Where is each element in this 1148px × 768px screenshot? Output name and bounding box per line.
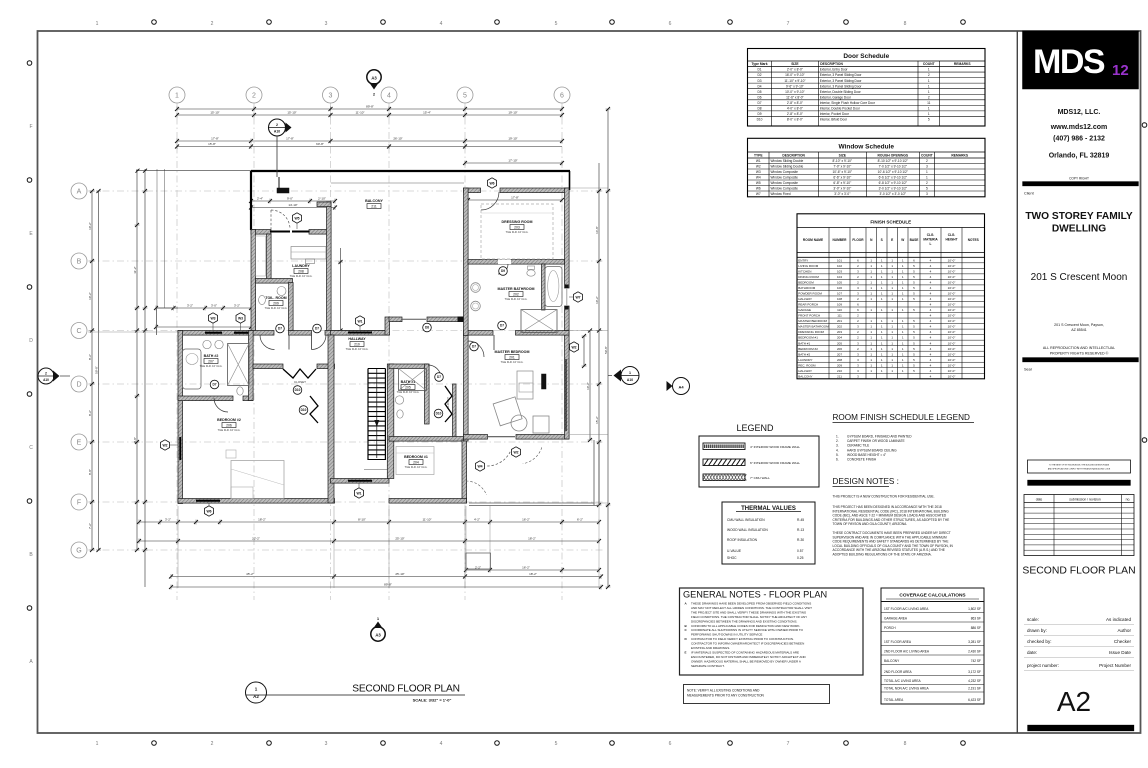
svg-text:LAUNDRY: LAUNDRY — [292, 264, 310, 268]
svg-text:2'-8" x 8'-0": 2'-8" x 8'-0" — [787, 101, 803, 105]
svg-text:10'-0": 10'-0" — [948, 341, 956, 345]
svg-text:Issue Date: Issue Date — [1109, 650, 1131, 655]
svg-text:D9: D9 — [501, 269, 505, 273]
svg-text:W2: W2 — [571, 345, 576, 349]
svg-text:WOOD BASE HEIGHT = 4": WOOD BASE HEIGHT = 4" — [847, 453, 886, 457]
svg-text:102: 102 — [837, 264, 842, 268]
svg-text:BATH #2: BATH #2 — [204, 354, 219, 358]
svg-text:8'-2": 8'-2" — [88, 410, 92, 416]
svg-text:GARAGE: GARAGE — [798, 308, 811, 312]
svg-text:TILE FLR. 10' CLG.: TILE FLR. 10' CLG. — [200, 364, 223, 368]
svg-text:MASTER BATHROOM: MASTER BATHROOM — [798, 325, 829, 329]
svg-text:2,191 SF: 2,191 SF — [968, 687, 981, 691]
svg-text:R-45: R-45 — [797, 518, 804, 522]
svg-text:6'-8 1/2" x 9'-10 1/2": 6'-8 1/2" x 9'-10 1/2" — [879, 181, 907, 185]
svg-text:W6: W6 — [489, 181, 494, 185]
svg-text:TOTAL A/C LIVING AREA: TOTAL A/C LIVING AREA — [884, 679, 921, 683]
svg-text:201 S Crescent Moon, Payson,: 201 S Crescent Moon, Payson, — [1054, 323, 1104, 327]
svg-text:3'-0 1/2" x 9'-10 1/2": 3'-0 1/2" x 9'-10 1/2" — [879, 187, 907, 191]
svg-text:11'-10" x 9'-10": 11'-10" x 9'-10" — [784, 79, 805, 83]
svg-text:10'-0" x 9'-10": 10'-0" x 9'-10" — [785, 90, 805, 94]
svg-text:W6: W6 — [756, 187, 761, 191]
svg-text:10'-6 1/2" x 9'-10 1/2": 10'-6 1/2" x 9'-10 1/2" — [878, 170, 908, 174]
svg-text:5: 5 — [555, 21, 558, 27]
svg-text:TO THE BEST OF MY KNOWLEDGE, T: TO THE BEST OF MY KNOWLEDGE, THE BUILDIN… — [1049, 464, 1110, 467]
svg-text:G: G — [76, 548, 81, 555]
svg-text:1: 1 — [928, 90, 930, 94]
svg-text:3'-0": 3'-0" — [211, 304, 217, 308]
svg-text:COVERAGE CALCULATIONS: COVERAGE CALCULATIONS — [899, 593, 966, 599]
svg-text:8: 8 — [904, 741, 907, 747]
svg-text:3: 3 — [325, 741, 328, 747]
svg-text:2ND FLOOR A/C LIVING AREA: 2ND FLOOR A/C LIVING AREA — [884, 650, 930, 654]
svg-text:108: 108 — [837, 297, 842, 301]
svg-text:Interior, Bifold Door: Interior, Bifold Door — [820, 118, 848, 122]
svg-text:BALCONY: BALCONY — [365, 199, 383, 203]
svg-text:10'-0": 10'-0" — [948, 369, 956, 373]
svg-text:7'-2": 7'-2" — [88, 523, 92, 529]
svg-text:26'-10": 26'-10" — [393, 137, 402, 141]
svg-text:208: 208 — [298, 270, 304, 274]
svg-text:SECOND FLOOR PLAN: SECOND FLOOR PLAN — [352, 684, 460, 695]
svg-text:Type Mark: Type Mark — [751, 62, 767, 66]
svg-text:1ST FLOOR AREA: 1ST FLOOR AREA — [884, 640, 912, 644]
svg-text:18'-2": 18'-2" — [528, 537, 536, 541]
svg-text:COUNT: COUNT — [923, 62, 935, 66]
svg-text:A4: A4 — [678, 385, 684, 390]
svg-text:Window Fixed: Window Fixed — [771, 192, 791, 196]
svg-text:104: 104 — [837, 275, 842, 279]
svg-text:BEDROOM #1: BEDROOM #1 — [798, 336, 818, 340]
svg-text:TOWN OF PAYSON AND GILA COUNTY: TOWN OF PAYSON AND GILA COUNTY, ARIZONA. — [833, 522, 908, 526]
svg-text:8'-0" x 8'-0": 8'-0" x 8'-0" — [787, 118, 803, 122]
svg-text:D7: D7 — [500, 324, 504, 328]
svg-text:REMARKS: REMARKS — [951, 154, 968, 158]
svg-text:W: W — [901, 238, 904, 242]
svg-text:103: 103 — [837, 269, 842, 273]
svg-text:10'-0": 10'-0" — [948, 325, 956, 329]
svg-text:9'-8": 9'-8" — [133, 437, 137, 443]
svg-text:10'-2": 10'-2" — [595, 296, 599, 304]
svg-text:BEDROOM #1: BEDROOM #1 — [404, 455, 428, 459]
svg-text:HALLWAY: HALLWAY — [798, 297, 812, 301]
svg-text:Exterior, Double Sliding Door: Exterior, Double Sliding Door — [820, 90, 862, 94]
svg-text:date: date — [1036, 498, 1043, 502]
svg-text:3'-2": 3'-2" — [165, 518, 171, 522]
svg-text:CONCRETE FINISH: CONCRETE FINISH — [847, 458, 877, 462]
svg-text:14'-8": 14'-8" — [595, 226, 599, 234]
svg-text:GENERAL NOTES - FLOOR PLAN: GENERAL NOTES - FLOOR PLAN — [683, 590, 827, 600]
svg-text:TILE FLR. 10' CLG.: TILE FLR. 10' CLG. — [501, 360, 524, 364]
svg-text:1: 1 — [629, 371, 631, 375]
svg-text:BALCONY: BALCONY — [798, 374, 812, 378]
svg-text:7" CMU WALL: 7" CMU WALL — [750, 476, 770, 480]
svg-text:no.: no. — [1126, 498, 1131, 502]
svg-text:THIS PROJECT IS A NEW CONSTRUC: THIS PROJECT IS A NEW CONSTRUCTION FOR R… — [833, 495, 935, 499]
svg-text:NOTES: NOTES — [968, 238, 979, 242]
svg-text:6: 6 — [669, 741, 672, 747]
svg-text:60'-8": 60'-8" — [316, 142, 324, 146]
svg-text:10'-6" x 9'-10": 10'-6" x 9'-10" — [832, 170, 852, 174]
svg-text:2,430 SF: 2,430 SF — [968, 650, 981, 654]
svg-text:208: 208 — [837, 358, 842, 362]
svg-text:D2: D2 — [757, 73, 761, 77]
svg-text:2: 2 — [252, 93, 256, 100]
svg-text:17'-8": 17'-8" — [511, 196, 519, 200]
svg-text:17'-10": 17'-10" — [508, 159, 517, 163]
svg-text:Window Sliding Double: Window Sliding Double — [771, 165, 804, 169]
svg-text:10'-0": 10'-0" — [948, 314, 956, 318]
svg-text:210: 210 — [354, 343, 360, 347]
svg-text:10'-0": 10'-0" — [948, 292, 956, 296]
svg-text:HALLWAY: HALLWAY — [348, 337, 366, 341]
svg-text:1: 1 — [928, 79, 930, 83]
svg-text:FLOOR: FLOOR — [852, 238, 864, 242]
svg-text:NUMBER: NUMBER — [833, 238, 848, 242]
svg-text:8'-2": 8'-2" — [88, 354, 92, 360]
svg-text:MASTER BEDROOM: MASTER BEDROOM — [495, 350, 530, 354]
svg-text:D10: D10 — [295, 388, 301, 392]
svg-text:W5: W5 — [294, 216, 299, 220]
svg-text:6.: 6. — [836, 458, 839, 462]
svg-text:8'-10": 8'-10" — [358, 518, 366, 522]
svg-text:OWNER. HAZARDOUS MATERIAL SHA: OWNER. HAZARDOUS MATERIAL SHALL BE REMOV… — [691, 659, 801, 663]
svg-text:3: 3 — [926, 192, 928, 196]
svg-text:MATERIA: MATERIA — [923, 238, 938, 242]
svg-text:D9: D9 — [757, 112, 761, 116]
svg-text:CMU WALL INSULATION: CMU WALL INSULATION — [727, 518, 765, 522]
svg-text:3'-2": 3'-2" — [187, 304, 193, 308]
svg-text:Seal: Seal — [1024, 368, 1032, 372]
svg-text:6: 6 — [560, 93, 564, 100]
svg-text:15'-2": 15'-2" — [595, 416, 599, 424]
svg-text:THERMAL VALUES: THERMAL VALUES — [741, 506, 796, 512]
svg-text:REAR PORCH: REAR PORCH — [798, 303, 818, 307]
svg-text:6,423 SF: 6,423 SF — [968, 698, 981, 702]
svg-text:10'-0": 10'-0" — [948, 374, 956, 378]
svg-text:59'-8": 59'-8" — [604, 346, 608, 354]
svg-text:LIVING ROOM: LIVING ROOM — [798, 264, 819, 268]
svg-text:TOIL. ROOM: TOIL. ROOM — [265, 296, 286, 300]
svg-text:R-30: R-30 — [797, 538, 804, 542]
svg-text:W2: W2 — [756, 165, 761, 169]
svg-text:2: 2 — [45, 372, 47, 376]
svg-text:25'-10": 25'-10" — [395, 537, 404, 541]
svg-text:A10: A10 — [274, 130, 280, 134]
svg-text:W3: W3 — [238, 316, 243, 320]
svg-text:TILE FLR. 10' CLG.: TILE FLR. 10' CLG. — [505, 297, 528, 301]
svg-text:DINING ROOM: DINING ROOM — [798, 275, 819, 279]
svg-text:11: 11 — [927, 101, 931, 105]
svg-text:SIZE: SIZE — [839, 154, 847, 158]
svg-text:project number:: project number: — [1027, 663, 1059, 668]
svg-text:1: 1 — [175, 93, 179, 100]
svg-text:D4: D4 — [757, 84, 761, 88]
svg-text:101: 101 — [837, 258, 842, 262]
svg-text:3'-2": 3'-2" — [234, 304, 240, 308]
svg-text:10'-0": 10'-0" — [948, 286, 956, 290]
svg-text:BEDROOM #2: BEDROOM #2 — [217, 418, 241, 422]
svg-text:2ND FLOOR AREA: 2ND FLOOR AREA — [884, 670, 913, 674]
svg-text:7'-0 1/2" x 9'-10 1/2": 7'-0 1/2" x 9'-10 1/2" — [879, 165, 907, 169]
svg-text:TOTAL AREA: TOTAL AREA — [884, 698, 904, 702]
svg-text:203: 203 — [837, 330, 842, 334]
svg-text:(407) 986 - 2132: (407) 986 - 2132 — [1053, 136, 1105, 143]
svg-text:8: 8 — [904, 21, 907, 27]
svg-text:D8: D8 — [425, 326, 429, 330]
svg-text:202: 202 — [513, 293, 519, 297]
svg-text:3'-0" x 9'-10": 3'-0" x 9'-10" — [833, 187, 851, 191]
svg-text:GARAGE AREA: GARAGE AREA — [884, 617, 908, 621]
svg-text:ALL REPRODUCTION AND INTELLECT: ALL REPRODUCTION AND INTELLECTUAL — [1043, 346, 1115, 350]
svg-text:HEIGHT: HEIGHT — [945, 238, 957, 242]
svg-text:BATH #1: BATH #1 — [401, 380, 416, 384]
svg-text:W1: W1 — [356, 491, 361, 495]
svg-text:COPY RIGHT: COPY RIGHT — [1069, 177, 1089, 181]
svg-text:Exterior, Garage Door: Exterior, Garage Door — [820, 95, 852, 99]
svg-text:HARD GYPSUM BOARD CEILING: HARD GYPSUM BOARD CEILING — [847, 448, 897, 452]
svg-text:17'-8": 17'-8" — [286, 137, 294, 141]
svg-text:203: 203 — [514, 226, 520, 230]
svg-text:ADOPTED BUILDING REGULATIONS O: ADOPTED BUILDING REGULATIONS OF THE STAT… — [833, 553, 932, 557]
svg-text:3: 3 — [325, 21, 328, 27]
svg-text:DRESSING ROOM: DRESSING ROOM — [502, 220, 533, 224]
svg-text:As indicated: As indicated — [1106, 617, 1131, 622]
svg-text:A: A — [77, 189, 82, 196]
svg-text:Interior, Double Pocket Door: Interior, Double Pocket Door — [820, 107, 861, 111]
svg-text:BEDROOM #2: BEDROOM #2 — [798, 347, 818, 351]
svg-text:D: D — [29, 338, 33, 344]
svg-text:Client: Client — [1024, 192, 1035, 196]
svg-text:206: 206 — [226, 424, 232, 428]
svg-text:10'-0": 10'-0" — [948, 303, 956, 307]
svg-text:GYPSUM BOARD, FINISHED AND PAI: GYPSUM BOARD, FINISHED AND PAINTED — [847, 435, 912, 439]
svg-text:16'-2": 16'-2" — [522, 566, 530, 570]
svg-text:DESCRIPTION: DESCRIPTION — [820, 62, 843, 66]
svg-text:17'-8": 17'-8" — [211, 137, 219, 141]
svg-text:1,802 SF: 1,802 SF — [968, 607, 981, 611]
svg-text:drawn by:: drawn by: — [1027, 628, 1047, 633]
svg-text:Window Composite: Window Composite — [771, 176, 799, 180]
svg-text:25'-10": 25'-10" — [395, 572, 404, 576]
svg-text:MASTER BEDROOM: MASTER BEDROOM — [798, 319, 827, 323]
svg-text:211: 211 — [371, 205, 377, 209]
svg-text:9'-0": 9'-0" — [287, 197, 293, 201]
svg-text:E: E — [685, 650, 687, 654]
svg-text:6" INTERIOR WOOD FRAME WALL: 6" INTERIOR WOOD FRAME WALL — [750, 461, 800, 465]
svg-text:CLG.: CLG. — [927, 233, 935, 237]
svg-text:110: 110 — [837, 308, 842, 312]
svg-text:SHGC: SHGC — [727, 556, 737, 560]
svg-text:1: 1 — [928, 112, 930, 116]
svg-text:F: F — [77, 500, 81, 507]
svg-text:45'-2": 45'-2" — [246, 572, 254, 576]
svg-text:A10: A10 — [627, 378, 633, 382]
svg-text:4'-2": 4'-2" — [474, 518, 480, 522]
svg-text:MASTER BATHROOM: MASTER BATHROOM — [497, 287, 534, 291]
svg-text:4: 4 — [440, 741, 443, 747]
svg-text:ROOM NAME: ROOM NAME — [803, 238, 823, 242]
svg-text:CLOSET: CLOSET — [446, 397, 450, 409]
svg-text:209: 209 — [273, 302, 279, 306]
svg-text:209: 209 — [837, 363, 842, 367]
svg-text:THE PROJECT SITE AND SHALL VER: THE PROJECT SITE AND SHALL VERIFY THESE … — [691, 610, 807, 614]
svg-text:AZ 85541: AZ 85541 — [1071, 328, 1087, 332]
svg-text:207: 207 — [837, 352, 842, 356]
svg-text:10'-0": 10'-0" — [948, 352, 956, 356]
svg-text:TILE FLR. 10' CLG.: TILE FLR. 10' CLG. — [346, 347, 369, 351]
svg-text:2'-4": 2'-4" — [257, 197, 263, 201]
svg-text:BASE: BASE — [910, 238, 919, 242]
svg-text:COORDINATE ALL SHUTDOWNS IN UT: COORDINATE ALL SHUTDOWNS IN UTILITY SERV… — [691, 628, 804, 632]
svg-text:CLOSET: CLOSET — [294, 380, 306, 384]
svg-text:3'-0" x 3'-0": 3'-0" x 3'-0" — [834, 192, 850, 196]
svg-text:A10: A10 — [43, 378, 49, 382]
svg-text:2: 2 — [211, 741, 214, 747]
svg-text:Orlando, FL 32819: Orlando, FL 32819 — [1049, 153, 1110, 160]
svg-text:0.57: 0.57 — [797, 549, 804, 553]
svg-text:Door Schedule: Door Schedule — [843, 53, 889, 60]
svg-text:D7: D7 — [315, 327, 319, 331]
svg-text:202: 202 — [837, 325, 842, 329]
svg-text:W2: W2 — [513, 450, 518, 454]
svg-text:10'-0": 10'-0" — [948, 319, 956, 323]
svg-text:SIZE: SIZE — [791, 62, 799, 66]
svg-text:TILE FLR. 10' CLG.: TILE FLR. 10' CLG. — [506, 230, 529, 234]
svg-text:4: 4 — [387, 93, 391, 100]
svg-text:C: C — [29, 445, 33, 451]
svg-text:10'-0": 10'-0" — [948, 363, 956, 367]
svg-text:4,232 SF: 4,232 SF — [968, 679, 981, 683]
svg-text:EXISTING AND DRAWINGS.: EXISTING AND DRAWINGS. — [691, 646, 730, 650]
svg-text:1: 1 — [96, 21, 99, 27]
svg-text:D7: D7 — [437, 375, 441, 379]
svg-text:BEDROOM: BEDROOM — [798, 281, 814, 285]
svg-text:U-VALUE: U-VALUE — [727, 549, 742, 553]
svg-text:16'-2": 16'-2" — [522, 518, 530, 522]
svg-text:201: 201 — [837, 319, 842, 323]
svg-text:Exterior, 3 Panel Sliding Door: Exterior, 3 Panel Sliding Door — [820, 73, 863, 77]
svg-text:DWELLING: DWELLING — [1052, 224, 1106, 235]
svg-text:C: C — [76, 328, 81, 335]
svg-text:1: 1 — [96, 741, 99, 747]
svg-text:IF MATERIALS SUSPECTED OF CONT: IF MATERIALS SUSPECTED OF CONTAINING HAZ… — [691, 650, 799, 654]
svg-text:www.mds12.com: www.mds12.com — [1050, 124, 1108, 131]
svg-text:5: 5 — [928, 118, 930, 122]
svg-text:205: 205 — [405, 386, 411, 390]
svg-text:4'-0" x 8'-0": 4'-0" x 8'-0" — [787, 107, 803, 111]
svg-text:E: E — [77, 440, 82, 447]
svg-text:106: 106 — [837, 286, 842, 290]
svg-text:11'-10": 11'-10" — [355, 111, 364, 115]
svg-text:D8: D8 — [757, 107, 761, 111]
svg-text:CONTRACTOR TO FIELD VERIFY EXI: CONTRACTOR TO FIELD VERIFY EXISTING PRIO… — [691, 637, 794, 641]
svg-text:10'-0": 10'-0" — [948, 297, 956, 301]
svg-text:22'-2": 22'-2" — [252, 537, 260, 541]
svg-text:886 SF: 886 SF — [971, 626, 981, 630]
svg-text:AND MAY NOT REFLECT ALL HIDDEN: AND MAY NOT REFLECT ALL HIDDEN CONDITION… — [691, 606, 812, 610]
svg-text:1: 1 — [928, 84, 930, 88]
svg-text:B: B — [77, 259, 82, 266]
svg-text:W5: W5 — [756, 181, 761, 185]
svg-text:D7: D7 — [757, 101, 761, 105]
svg-text:SECOND FLOOR PLAN: SECOND FLOOR PLAN — [1022, 566, 1135, 577]
svg-text:ENCOUNTERED, DO NOT DISTURB AN: ENCOUNTERED, DO NOT DISTURB AND IMMEDIAT… — [691, 655, 807, 659]
svg-text:15'-10": 15'-10" — [287, 111, 296, 115]
svg-text:12: 12 — [1112, 62, 1129, 79]
svg-text:7'-0" x 9'-10": 7'-0" x 9'-10" — [833, 165, 851, 169]
svg-text:D7: D7 — [472, 345, 476, 349]
svg-text:59'-8": 59'-8" — [94, 366, 98, 374]
svg-text:BATH #1: BATH #1 — [798, 341, 810, 345]
svg-text:TILE FLR. 10' CLG.: TILE FLR. 10' CLG. — [290, 274, 313, 278]
svg-text:Window Schedule: Window Schedule — [838, 144, 894, 151]
svg-text:W7: W7 — [575, 295, 580, 299]
svg-text:4.: 4. — [836, 448, 839, 452]
svg-text:15'-4": 15'-4" — [423, 111, 431, 115]
svg-text:W3: W3 — [210, 316, 215, 320]
svg-text:6'-8" x 9'-10": 6'-8" x 9'-10" — [833, 181, 851, 185]
svg-text:7: 7 — [787, 741, 790, 747]
svg-text:204: 204 — [837, 336, 842, 340]
svg-text:10'-0": 10'-0" — [948, 269, 956, 273]
svg-text:SCALE: 3/32" = 1'-0": SCALE: 3/32" = 1'-0" — [413, 698, 452, 703]
svg-text:4: 4 — [440, 21, 443, 27]
svg-text:CERAMIC TILE: CERAMIC TILE — [847, 444, 869, 448]
svg-text:2'-0" x 8'-0": 2'-0" x 8'-0" — [787, 68, 803, 72]
svg-text:5: 5 — [926, 187, 928, 191]
svg-text:9'-6" x 9'-10": 9'-6" x 9'-10" — [786, 84, 804, 88]
svg-text:107: 107 — [837, 292, 842, 296]
svg-text:1: 1 — [928, 68, 930, 72]
svg-text:201 S Crescent Moon: 201 S Crescent Moon — [1031, 272, 1128, 283]
svg-text:3: 3 — [926, 165, 928, 169]
svg-text:2: 2 — [926, 159, 928, 163]
svg-text:PERFORMING SHUT-DOWNS IN UTILI: PERFORMING SHUT-DOWNS IN UTILITY SERVICE — [691, 633, 762, 637]
svg-text:D5: D5 — [757, 90, 761, 94]
svg-text:5: 5 — [555, 741, 558, 747]
svg-text:ROOF INSULATION: ROOF INSULATION — [727, 538, 758, 542]
svg-text:W1: W1 — [357, 319, 362, 323]
svg-text:D10: D10 — [301, 408, 307, 412]
svg-text:3,281 SF: 3,281 SF — [968, 640, 981, 644]
svg-text:1: 1 — [928, 107, 930, 111]
svg-text:HALLWAY: HALLWAY — [798, 369, 812, 373]
svg-text:W7: W7 — [756, 192, 761, 196]
svg-text:Window Composite: Window Composite — [771, 187, 799, 191]
svg-text:BALCONY: BALCONY — [884, 659, 900, 663]
svg-text:15'-8": 15'-8" — [208, 142, 216, 146]
svg-text:19'-10": 19'-10" — [508, 137, 517, 141]
svg-text:1: 1 — [926, 176, 928, 180]
svg-text:Exterior, 3 Panel Sliding Door: Exterior, 3 Panel Sliding Door — [820, 79, 863, 83]
svg-text:2: 2 — [276, 123, 278, 127]
svg-text:A2: A2 — [1057, 686, 1091, 717]
svg-text:DESCRIPTION: DESCRIPTION — [782, 154, 805, 158]
svg-text:206: 206 — [837, 347, 842, 351]
svg-text:10'-2": 10'-2" — [88, 292, 92, 300]
svg-text:ROUGH OPENINGS: ROUGH OPENINGS — [878, 154, 909, 158]
svg-text:SEPARATE CONTRACT.: SEPARATE CONTRACT. — [691, 664, 725, 668]
svg-text:10'-0": 10'-0" — [948, 281, 956, 285]
svg-text:7: 7 — [787, 21, 790, 27]
svg-text:18'-2": 18'-2" — [529, 572, 537, 576]
svg-text:MDS12, LLC.: MDS12, LLC. — [1058, 109, 1101, 116]
svg-text:Exterior, 3 Panel Sliding Door: Exterior, 3 Panel Sliding Door — [820, 84, 863, 88]
svg-text:A3: A3 — [375, 633, 381, 638]
svg-text:2: 2 — [211, 21, 214, 27]
svg-text:5.: 5. — [836, 453, 839, 457]
